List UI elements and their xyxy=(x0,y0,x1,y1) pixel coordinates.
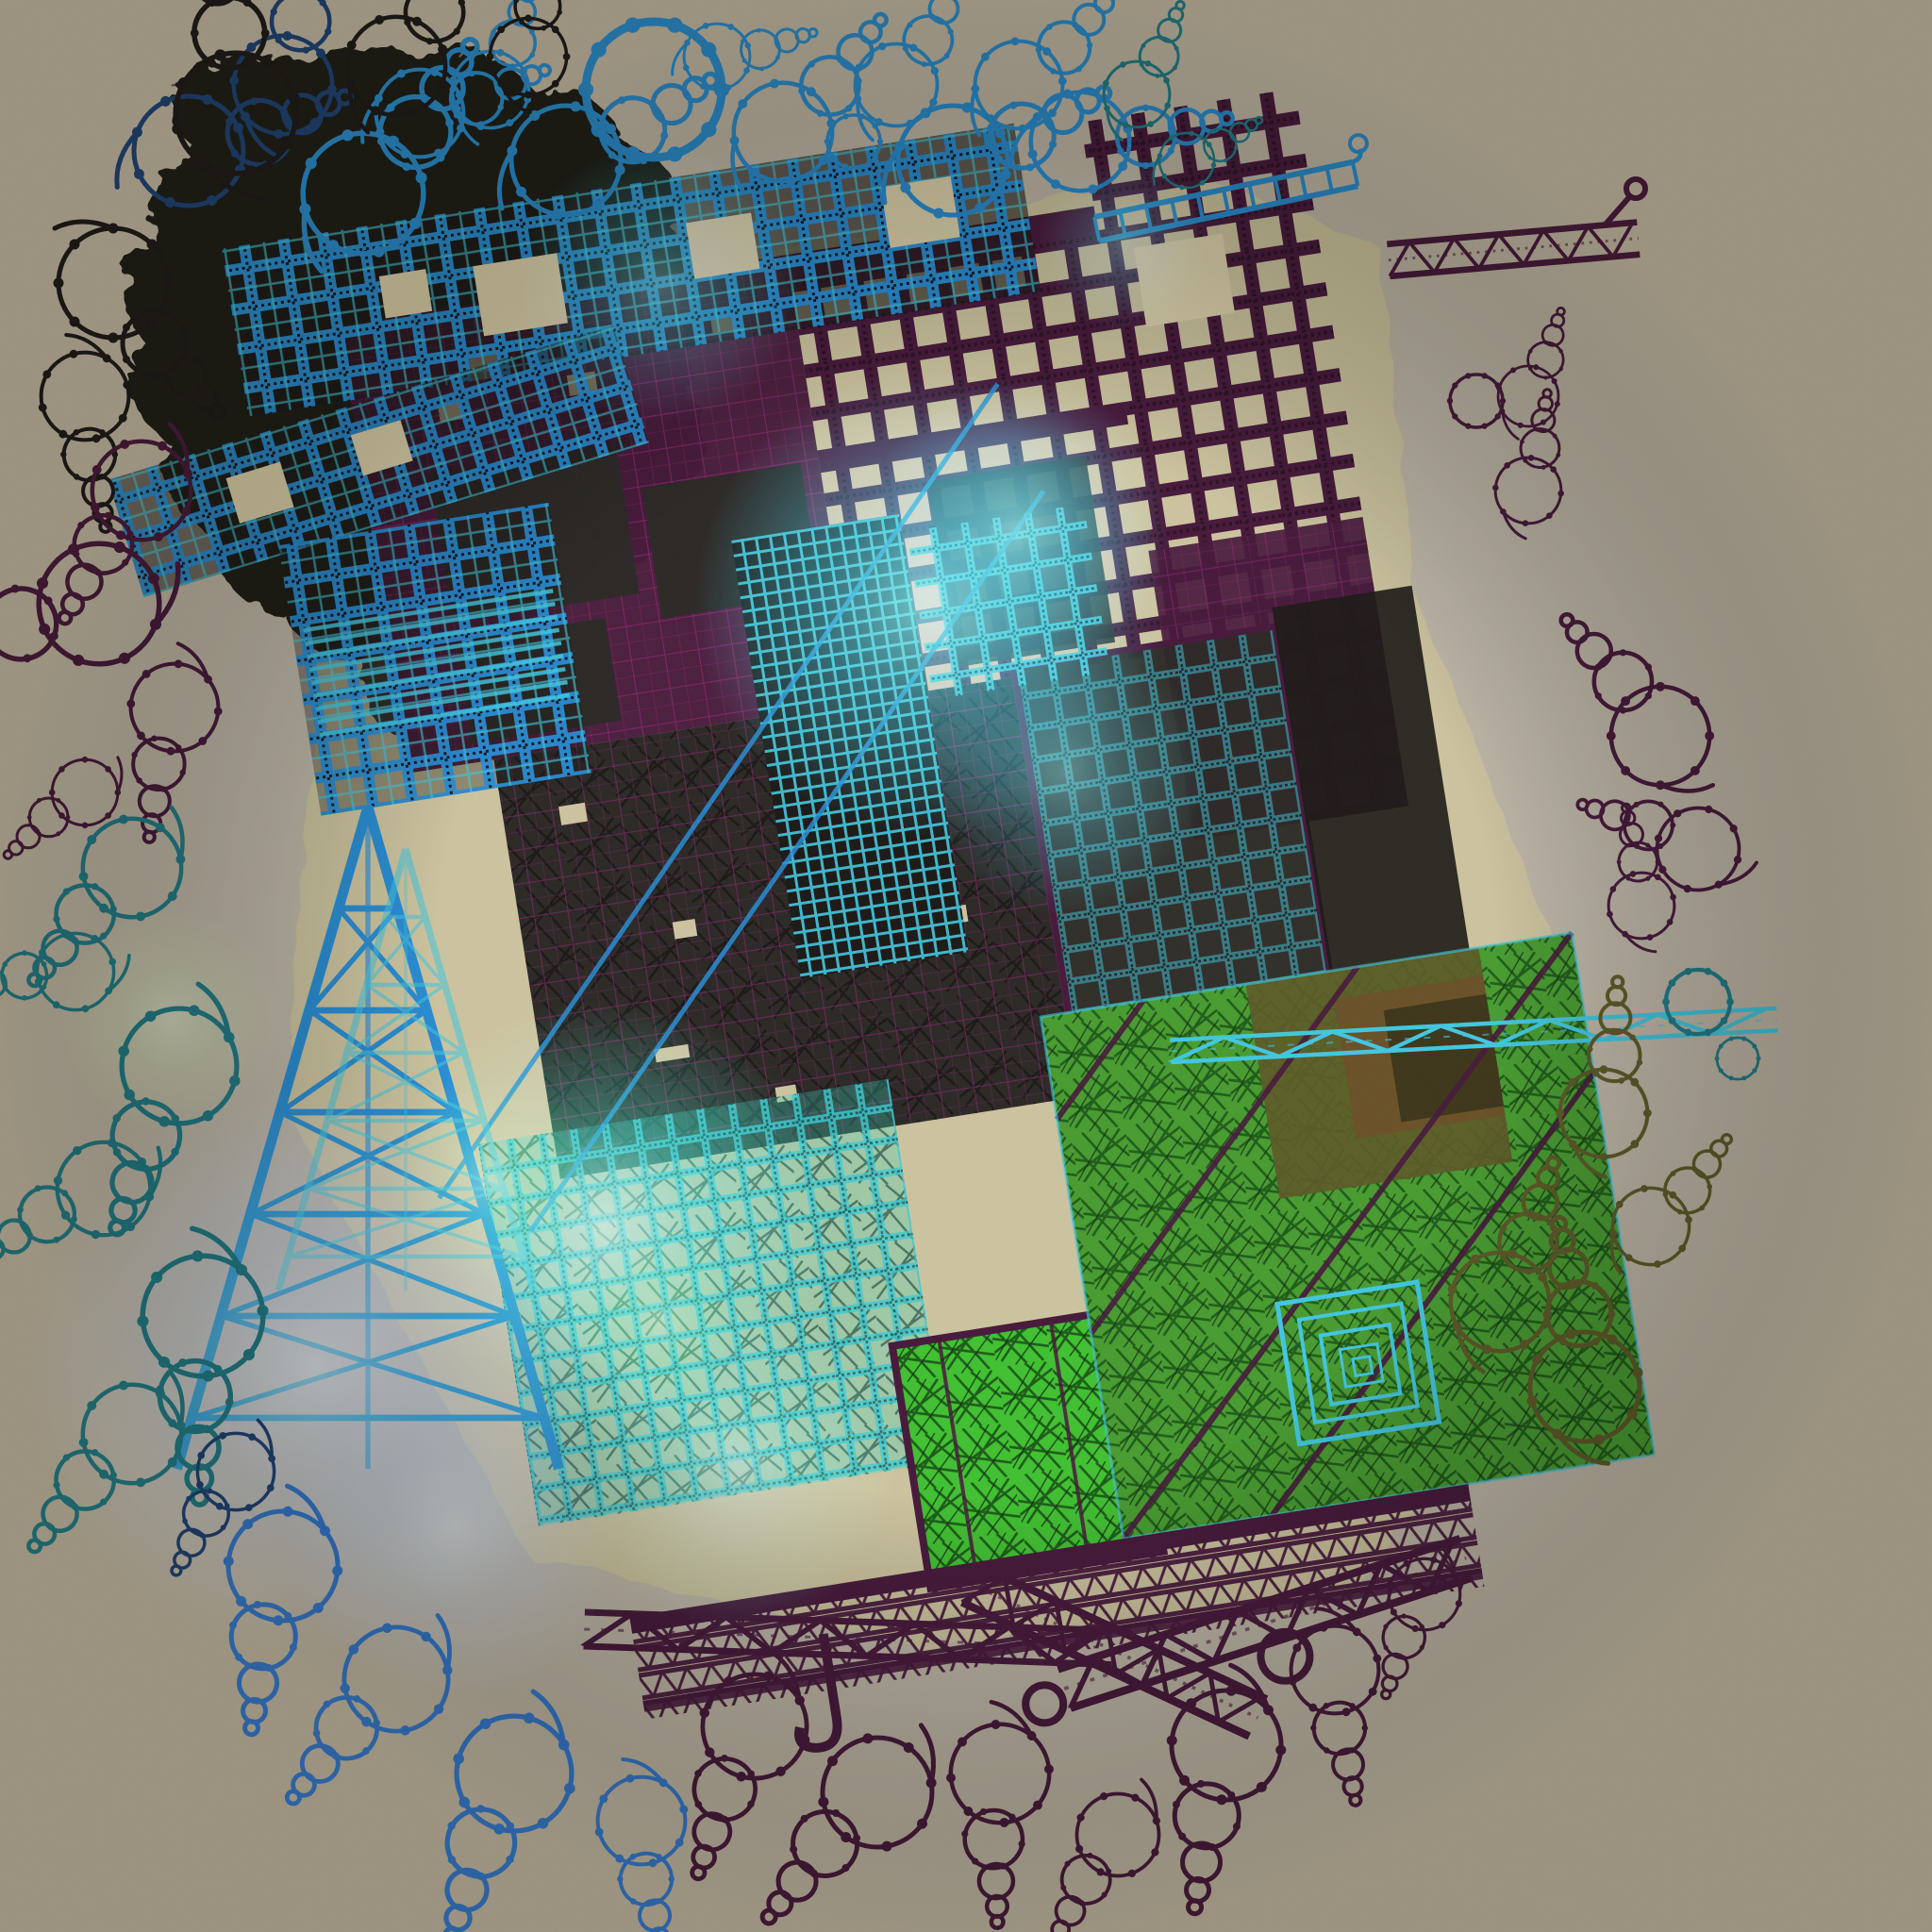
vignette xyxy=(0,0,1932,1932)
artwork-stage xyxy=(0,0,1932,1932)
fractal-collage-canvas xyxy=(0,0,1932,1932)
